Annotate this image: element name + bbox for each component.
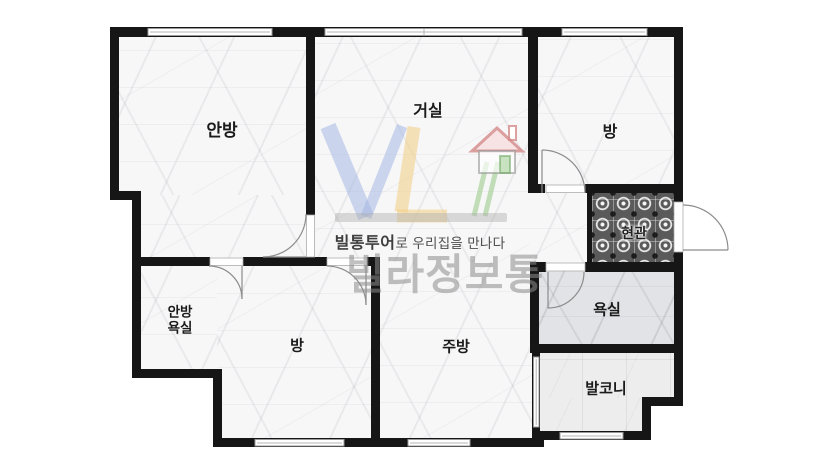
label-master-bathroom-line2: 욕실 [168,320,193,336]
floor-plan: 안방 거실 방 현관 욕실 발코니 안방 욕실 방 주방 [0,0,840,472]
label-entrance: 현관 [621,225,647,241]
label-master-bedroom: 안방 [206,121,237,141]
master-bedroom-door [263,214,306,257]
label-kitchen: 주방 [442,338,470,355]
master-bathroom-door [209,266,242,299]
walls-windows-doors [0,0,840,472]
label-master-bathroom: 안방 욕실 [168,304,193,335]
label-balcony: 발코니 [585,380,626,397]
window-midlines [150,29,645,443]
windows [148,29,647,447]
door-swings [209,150,728,308]
entrance-door [683,205,728,250]
label-bedroom-top: 방 [603,124,618,142]
label-bedroom-bottom: 방 [290,337,304,354]
bathroom-door [548,272,584,308]
label-living-room: 거실 [413,103,442,121]
label-bathroom: 욕실 [593,301,621,318]
label-master-bathroom-line1: 안방 [168,304,193,320]
bedroom-bottom-door [327,266,366,305]
